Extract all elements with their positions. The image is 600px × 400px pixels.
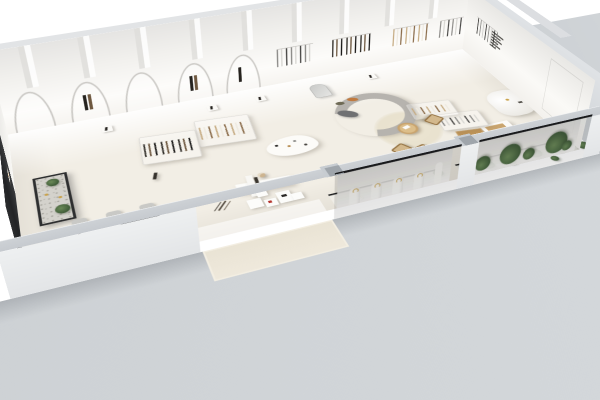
pedestal-item	[258, 97, 261, 100]
clothing-rack	[139, 130, 203, 165]
dress-mannequin	[257, 172, 267, 178]
display-item	[274, 145, 278, 147]
arched-floor-mirror	[307, 83, 333, 98]
potted-plant	[46, 178, 60, 188]
pedestal-item	[210, 106, 213, 109]
mirror-wall-cabinet	[32, 172, 76, 226]
organic-display-table	[262, 132, 323, 160]
wall-rail-garments	[439, 17, 464, 38]
render-stage	[0, 0, 600, 400]
potted-plant	[54, 203, 71, 215]
perspective-viewport	[0, 0, 600, 400]
pedestal-item	[105, 127, 108, 131]
display-item	[304, 143, 308, 145]
gold-product	[44, 193, 48, 196]
building-plan	[0, 43, 599, 299]
display-item	[287, 145, 291, 147]
cabinet-terrazzo-top	[35, 174, 73, 224]
gold-product	[58, 196, 62, 199]
standing-mannequin	[153, 173, 158, 180]
wall-rail-garments	[332, 33, 371, 57]
